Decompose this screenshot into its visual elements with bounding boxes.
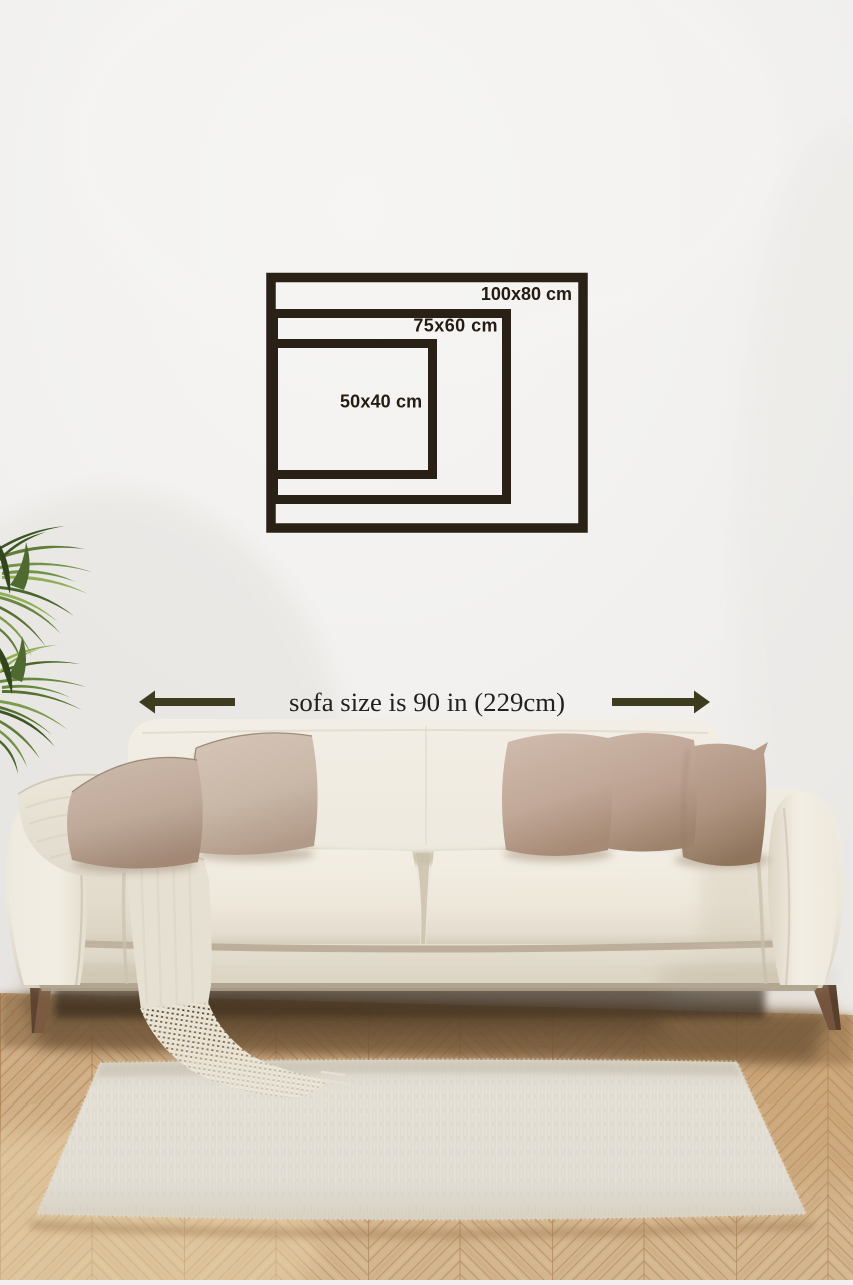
svg-text:50x40 cm: 50x40 cm [340,392,422,412]
svg-text:sofa size is 90 in (229cm): sofa size is 90 in (229cm) [289,687,565,717]
svg-text:75x60 cm: 75x60 cm [413,316,498,336]
svg-text:100x80 cm: 100x80 cm [481,284,572,304]
